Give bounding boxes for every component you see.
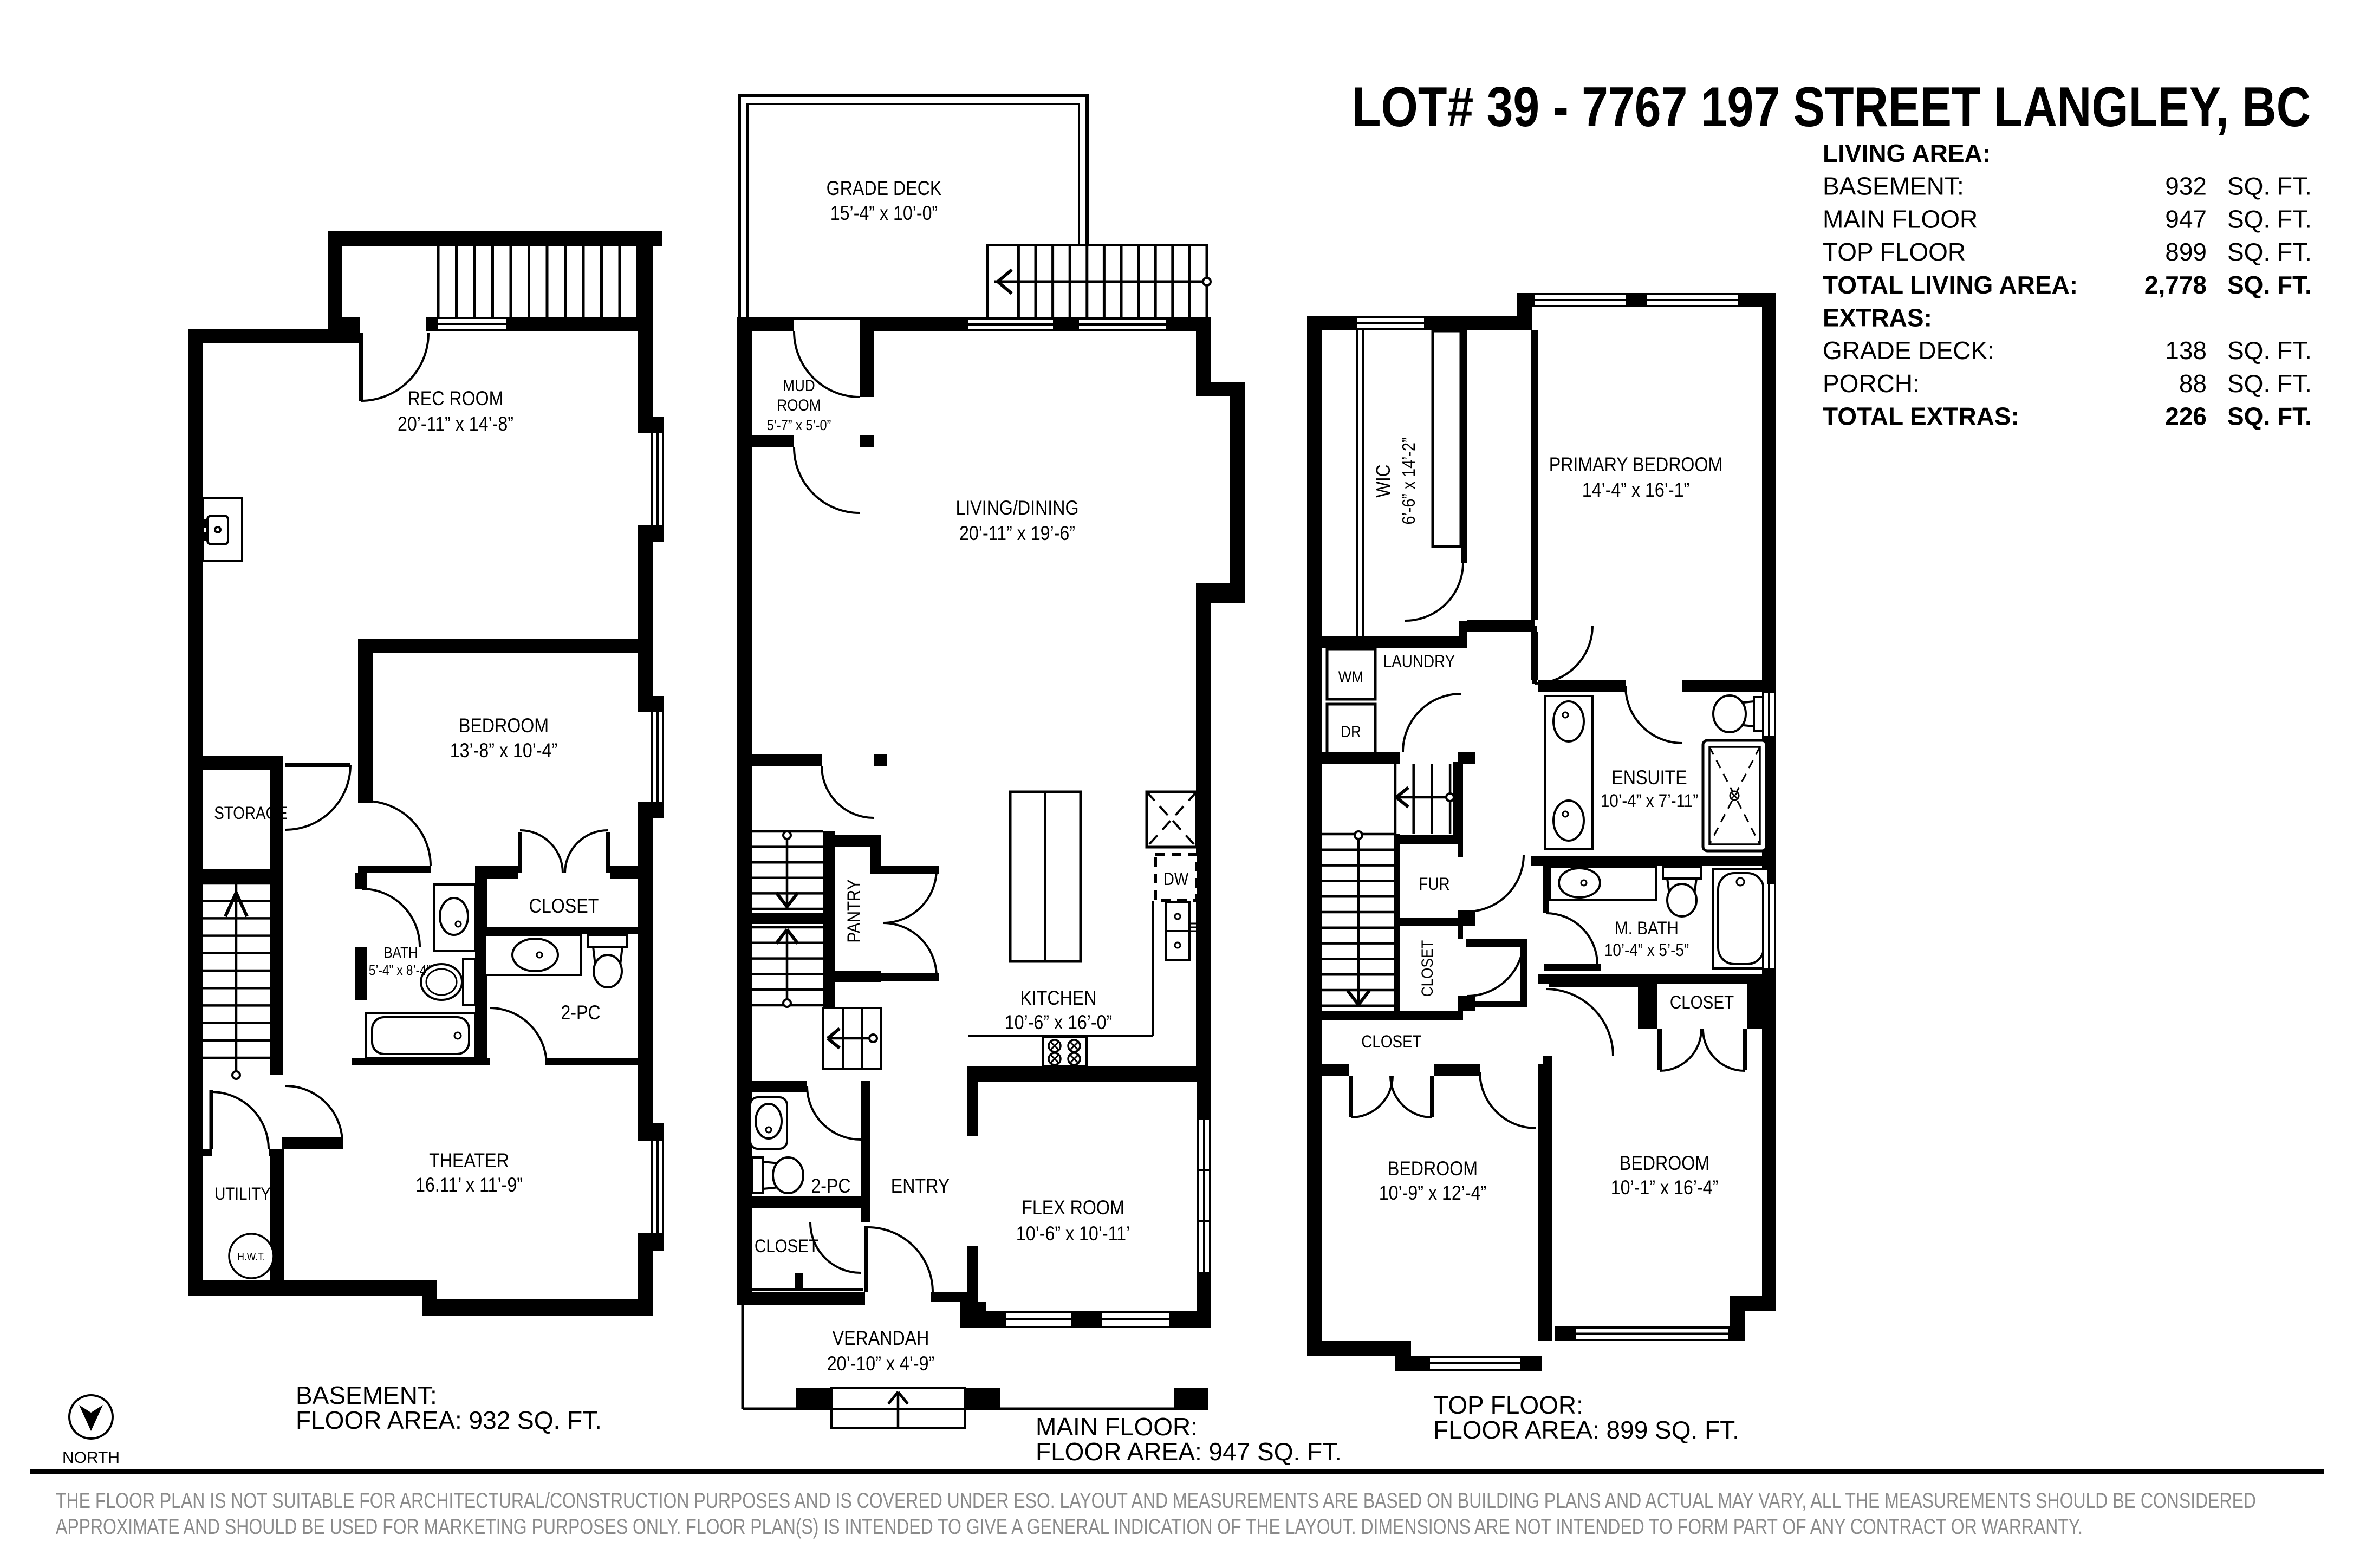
svg-text:2-PC: 2-PC <box>811 1175 850 1198</box>
svg-text:SQ. FT.: SQ. FT. <box>2227 205 2312 233</box>
svg-text:BEDROOM: BEDROOM <box>459 715 549 737</box>
svg-text:CLOSET: CLOSET <box>1361 1032 1421 1051</box>
svg-text:DW: DW <box>1163 870 1189 889</box>
svg-text:947: 947 <box>2165 205 2207 233</box>
svg-text:LOT# 39 - 7767 197 STREET LANG: LOT# 39 - 7767 197 STREET LANGLEY, BC <box>1352 76 2311 139</box>
svg-text:PORCH:: PORCH: <box>1823 369 1920 398</box>
svg-text:MAIN FLOOR: MAIN FLOOR <box>1823 205 1978 233</box>
svg-text:FLEX ROOM: FLEX ROOM <box>1022 1197 1124 1219</box>
svg-text:BASEMENT:: BASEMENT: <box>1823 172 1964 200</box>
svg-text:TOP FLOOR:: TOP FLOOR: <box>1433 1391 1583 1419</box>
svg-text:CLOSET: CLOSET <box>1418 940 1436 997</box>
svg-text:KITCHEN: KITCHEN <box>1020 987 1096 1010</box>
svg-text:SQ. FT.: SQ. FT. <box>2227 336 2312 365</box>
svg-text:DR: DR <box>1341 723 1361 740</box>
svg-text:WIC: WIC <box>1373 465 1395 498</box>
svg-text:SQ. FT.: SQ. FT. <box>2227 172 2312 200</box>
svg-text:226: 226 <box>2165 402 2207 431</box>
svg-text:ENTRY: ENTRY <box>891 1175 950 1198</box>
svg-text:MAIN FLOOR:: MAIN FLOOR: <box>1036 1413 1198 1441</box>
svg-text:CLOSET: CLOSET <box>1670 992 1734 1012</box>
svg-text:10’-1” x 16’-4”: 10’-1” x 16’-4” <box>1611 1177 1718 1199</box>
svg-text:PANTRY: PANTRY <box>843 879 864 942</box>
svg-text:10’-6” x 10’-11’: 10’-6” x 10’-11’ <box>1016 1223 1130 1245</box>
svg-text:10’-4” x 7’-11”: 10’-4” x 7’-11” <box>1601 790 1698 811</box>
svg-text:TOP FLOOR: TOP FLOOR <box>1823 238 1966 266</box>
svg-text:10’-4” x 5’-5”: 10’-4” x 5’-5” <box>1604 941 1689 960</box>
svg-text:20’-11” x 19’-6”: 20’-11” x 19’-6” <box>959 523 1075 545</box>
svg-text:PRIMARY BEDROOM: PRIMARY BEDROOM <box>1549 454 1723 476</box>
svg-text:10’-9” x 12’-4”: 10’-9” x 12’-4” <box>1379 1182 1486 1205</box>
svg-text:20’-10” x 4’-9”: 20’-10” x 4’-9” <box>827 1353 934 1375</box>
svg-text:5’-7” x 5’-0”: 5’-7” x 5’-0” <box>767 418 831 434</box>
svg-text:SQ. FT.: SQ. FT. <box>2227 271 2312 299</box>
svg-text:BASEMENT:: BASEMENT: <box>296 1381 437 1409</box>
svg-text:BATH: BATH <box>383 944 418 961</box>
svg-text:5’-4” x 8’-4”: 5’-4” x 8’-4” <box>369 963 431 979</box>
svg-text:LIVING/DINING: LIVING/DINING <box>955 497 1078 519</box>
svg-text:FUR: FUR <box>1419 875 1449 894</box>
svg-text:GRADE DECK: GRADE DECK <box>827 178 942 200</box>
svg-text:REC ROOM: REC ROOM <box>408 388 504 410</box>
svg-text:LIVING AREA:: LIVING AREA: <box>1823 139 1991 167</box>
svg-text:FLOOR AREA: 947 SQ. FT.: FLOOR AREA: 947 SQ. FT. <box>1036 1437 1342 1466</box>
svg-text:WM: WM <box>1338 668 1363 686</box>
svg-text:M. BATH: M. BATH <box>1615 918 1679 938</box>
svg-text:THE FLOOR PLAN IS NOT SUITABLE: THE FLOOR PLAN IS NOT SUITABLE FOR ARCHI… <box>56 1489 2256 1513</box>
svg-text:SQ. FT.: SQ. FT. <box>2227 238 2312 266</box>
svg-text:MUD: MUD <box>783 376 815 394</box>
svg-text:BEDROOM: BEDROOM <box>1388 1158 1478 1180</box>
svg-text:2,778: 2,778 <box>2144 271 2207 299</box>
svg-text:14’-4” x 16’-1”: 14’-4” x 16’-1” <box>1582 479 1689 502</box>
svg-text:6’-6” x 14’-2”: 6’-6” x 14’-2” <box>1399 437 1419 524</box>
svg-text:16.11’ x 11’-9”: 16.11’ x 11’-9” <box>415 1174 523 1196</box>
svg-text:SQ. FT.: SQ. FT. <box>2227 369 2312 398</box>
svg-text:932: 932 <box>2165 172 2207 200</box>
svg-text:ENSUITE: ENSUITE <box>1611 767 1687 789</box>
svg-text:20’-11” x 14’-8”: 20’-11” x 14’-8” <box>398 413 513 435</box>
svg-text:GRADE DECK:: GRADE DECK: <box>1823 336 1994 365</box>
svg-text:ROOM: ROOM <box>777 396 821 414</box>
svg-text:899: 899 <box>2165 238 2207 266</box>
svg-text:2-PC: 2-PC <box>561 1002 600 1024</box>
svg-text:UTILITY: UTILITY <box>214 1185 271 1203</box>
svg-text:VERANDAH: VERANDAH <box>833 1328 929 1350</box>
svg-text:FLOOR AREA: 899 SQ. FT.: FLOOR AREA: 899 SQ. FT. <box>1433 1416 1739 1444</box>
svg-text:STORAGE: STORAGE <box>214 804 288 823</box>
svg-text:10’-6” x 16’-0”: 10’-6” x 16’-0” <box>1005 1012 1112 1034</box>
svg-text:FLOOR AREA: 932 SQ. FT.: FLOOR AREA: 932 SQ. FT. <box>296 1406 602 1434</box>
svg-text:15’-4” x 10’-0”: 15’-4” x 10’-0” <box>830 203 938 225</box>
svg-text:APPROXIMATE AND SHOULD BE USED: APPROXIMATE AND SHOULD BE USED FOR MARKE… <box>56 1515 2083 1539</box>
svg-text:EXTRAS:: EXTRAS: <box>1823 304 1932 332</box>
svg-text:BEDROOM: BEDROOM <box>1620 1153 1709 1175</box>
svg-text:138: 138 <box>2165 336 2207 365</box>
svg-text:CLOSET: CLOSET <box>529 895 599 918</box>
svg-text:TOTAL EXTRAS:: TOTAL EXTRAS: <box>1823 402 2019 431</box>
svg-text:LAUNDRY: LAUNDRY <box>1383 652 1455 671</box>
svg-text:CLOSET: CLOSET <box>755 1235 818 1256</box>
svg-text:TOTAL LIVING AREA:: TOTAL LIVING AREA: <box>1823 271 2078 299</box>
svg-text:13’-8” x 10’-4”: 13’-8” x 10’-4” <box>450 740 557 762</box>
svg-text:NORTH: NORTH <box>62 1449 120 1467</box>
svg-text:88: 88 <box>2179 369 2207 398</box>
svg-text:H.W.T.: H.W.T. <box>237 1251 265 1263</box>
svg-text:SQ. FT.: SQ. FT. <box>2227 402 2312 431</box>
svg-text:THEATER: THEATER <box>429 1150 509 1172</box>
